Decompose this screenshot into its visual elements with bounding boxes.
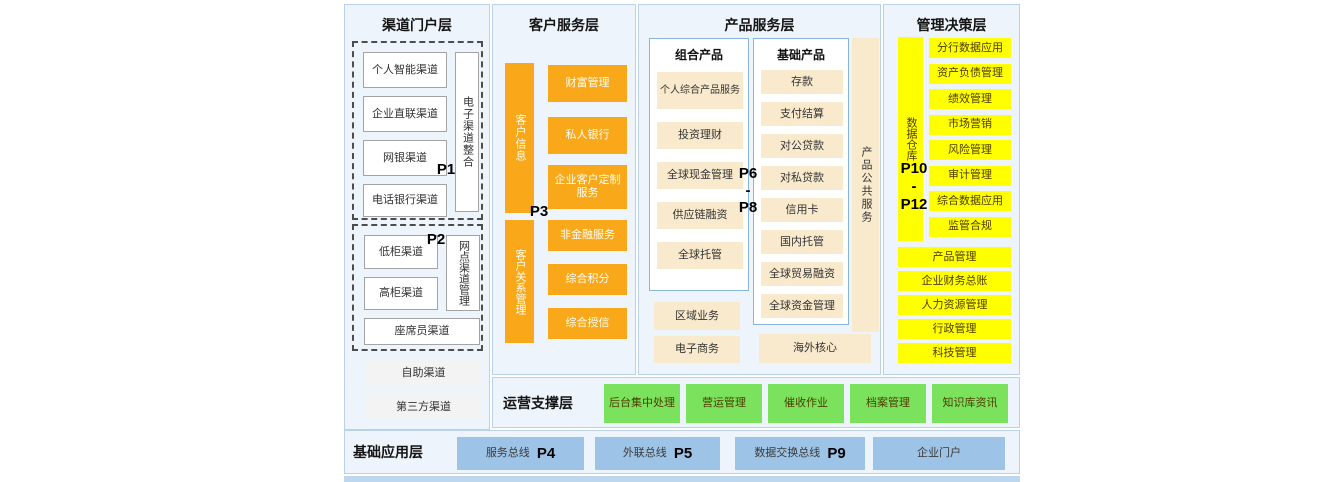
product-service-layer: 产品服务层 组合产品 个人综合产品服务 投资理财 全球现金管理 供应链融资 全球… (638, 4, 881, 375)
operations-support-layer-title: 运营支撑层 (503, 378, 573, 427)
customer-service-layer-title: 客户服务层 (493, 15, 635, 35)
foundation-application-layer: 基础应用层 服务总线 P4 外联总线 P5 数据交换总线 P9 企业门户 (344, 430, 1020, 474)
dash-label: - (727, 182, 769, 199)
management-item: 人力资源管理 (898, 295, 1011, 315)
dash-label: - (886, 178, 942, 196)
product-public-service-bar: 产品公共服务 (852, 38, 879, 332)
management-item: 分行数据应用 (929, 38, 1011, 58)
bus-label: 企业门户 (917, 447, 961, 460)
bus-label: 外联总线 (623, 447, 667, 460)
foundation-application-layer-title: 基础应用层 (353, 431, 423, 473)
customer-service-item: 非金融服务 (548, 220, 627, 251)
customer-service-item: 综合积分 (548, 264, 627, 295)
p10-p12-label: P10 - P12 (886, 160, 942, 214)
foundation-bus-box: 服务总线 P4 (457, 437, 584, 470)
management-item: 市场营销 (929, 115, 1011, 135)
management-item: 行政管理 (898, 319, 1011, 339)
customer-service-item: 财富管理 (548, 65, 627, 102)
product-item: 存款 (761, 70, 843, 94)
product-item: 信用卡 (761, 198, 843, 222)
basic-products-items: 存款 支付结算 对公贷款 对私贷款 信用卡 国内托管 全球贸易融资 全球资金管理 (761, 70, 843, 318)
management-item: 企业财务总账 (898, 271, 1011, 291)
p6-p8-label: P6 - P8 (727, 165, 769, 216)
basic-products-title: 基础产品 (754, 46, 848, 63)
p5-label: P5 (674, 445, 692, 463)
channel-item: 座席员渠道 (364, 318, 480, 345)
product-item: 区域业务 (654, 302, 740, 330)
product-service-layer-title: 产品服务层 (639, 15, 880, 35)
p8-label: P8 (727, 199, 769, 216)
foundation-bus-box: 外联总线 P5 (595, 437, 720, 470)
product-item: 国内托管 (761, 230, 843, 254)
product-item: 支付结算 (761, 102, 843, 126)
customer-info-bar: 客户信息 (505, 63, 534, 213)
management-item: 资产负债管理 (929, 64, 1011, 84)
channel-portal-layer: 渠道门户层 个人智能渠道 企业直联渠道 网银渠道 电话银行渠道 电子渠道整合 P… (344, 4, 490, 430)
p3-label: P3 (517, 203, 561, 220)
p2-label: P2 (414, 231, 458, 248)
management-item: 产品管理 (898, 247, 1011, 267)
p10-label: P10 (886, 160, 942, 178)
product-item: 全球托管 (657, 242, 743, 269)
p12-label: P12 (886, 196, 942, 214)
p4-label: P4 (537, 445, 555, 463)
product-item: 全球资金管理 (761, 294, 843, 318)
operations-item: 催收作业 (768, 384, 844, 423)
channel-item: 电话银行渠道 (363, 184, 447, 217)
management-wide-items: 产品管理 企业财务总账 人力资源管理 行政管理 科技管理 (898, 247, 1011, 363)
channel-item: 高柜渠道 (364, 277, 438, 310)
management-item: 风险管理 (929, 140, 1011, 160)
combo-products-title: 组合产品 (650, 46, 748, 63)
product-item: 电子商务 (654, 336, 740, 363)
management-decision-layer: 管理决策层 数据仓库 分行数据应用 资产负债管理 绩效管理 市场营销 风险管理 … (883, 4, 1020, 375)
p9-label: P9 (827, 445, 845, 463)
foundation-bus-box: 数据交换总线 P9 (735, 437, 865, 470)
product-item: 个人综合产品服务 (657, 72, 743, 109)
product-item: 全球贸易融资 (761, 262, 843, 286)
footer-strip (344, 476, 1020, 482)
p6-label: P6 (727, 165, 769, 182)
channel-item: 个人智能渠道 (363, 52, 447, 88)
product-item: 对私贷款 (761, 166, 843, 190)
customer-relationship-bar: 客户关系管理 (505, 220, 534, 343)
customer-service-layer: 客户服务层 客户信息 财富管理 私人银行 企业客户定制服务 P3 客户关系管理 … (492, 4, 636, 375)
channel-item: 自助渠道 (365, 360, 482, 386)
channel-item: 第三方渠道 (365, 394, 482, 420)
management-item: 监管合规 (929, 217, 1011, 237)
operations-item: 后台集中处理 (604, 384, 680, 423)
bus-label: 服务总线 (486, 447, 530, 460)
product-item: 对公贷款 (761, 134, 843, 158)
overseas-core-box: 海外核心 (759, 334, 871, 363)
operations-item: 档案管理 (850, 384, 926, 423)
electronic-channel-group: 个人智能渠道 企业直联渠道 网银渠道 电话银行渠道 电子渠道整合 P1 (352, 41, 483, 220)
management-item: 绩效管理 (929, 89, 1011, 109)
customer-service-item: 综合授信 (548, 308, 627, 339)
operations-item: 知识库资讯 (932, 384, 1008, 423)
channel-portal-layer-title: 渠道门户层 (345, 15, 489, 35)
product-item: 投资理财 (657, 122, 743, 149)
management-item: 科技管理 (898, 343, 1011, 363)
operations-items: 后台集中处理 营运管理 催收作业 档案管理 知识库资讯 (604, 384, 1008, 423)
p1-label: P1 (426, 161, 466, 178)
electronic-channel-items: 个人智能渠道 企业直联渠道 网银渠道 电话银行渠道 (363, 52, 447, 217)
foundation-bus-box: 企业门户 (873, 437, 1005, 470)
electronic-channel-integration-bar: 电子渠道整合 (455, 52, 479, 212)
customer-service-item: 私人银行 (548, 117, 627, 154)
operations-item: 营运管理 (686, 384, 762, 423)
architecture-diagram: 渠道门户层 个人智能渠道 企业直联渠道 网银渠道 电话银行渠道 电子渠道整合 P… (0, 0, 1333, 482)
channel-item: 企业直联渠道 (363, 96, 447, 132)
bus-label: 数据交换总线 (754, 447, 820, 460)
operations-support-layer: 运营支撑层 后台集中处理 营运管理 催收作业 档案管理 知识库资讯 (492, 377, 1020, 428)
management-decision-layer-title: 管理决策层 (884, 15, 1019, 35)
branch-channel-group: 低柜渠道 高柜渠道 网点渠道管理 座席员渠道 P2 (352, 224, 483, 351)
